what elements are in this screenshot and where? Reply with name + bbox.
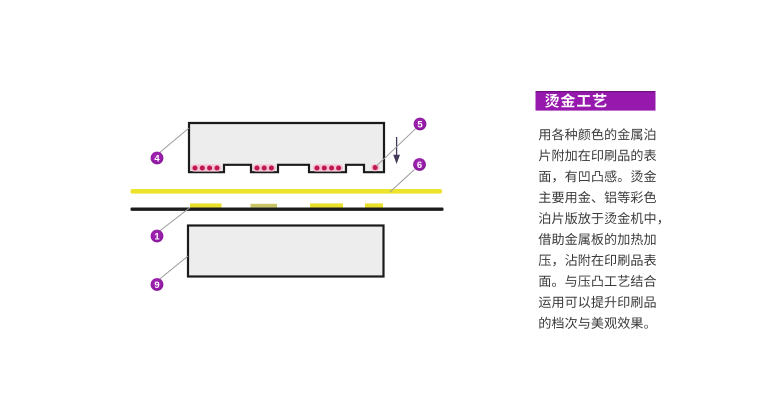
svg-text:9: 9 — [154, 280, 159, 291]
svg-text:1: 1 — [154, 231, 160, 242]
svg-text:5: 5 — [417, 119, 423, 130]
svg-text:6: 6 — [417, 160, 422, 171]
svg-text:4: 4 — [154, 153, 160, 164]
